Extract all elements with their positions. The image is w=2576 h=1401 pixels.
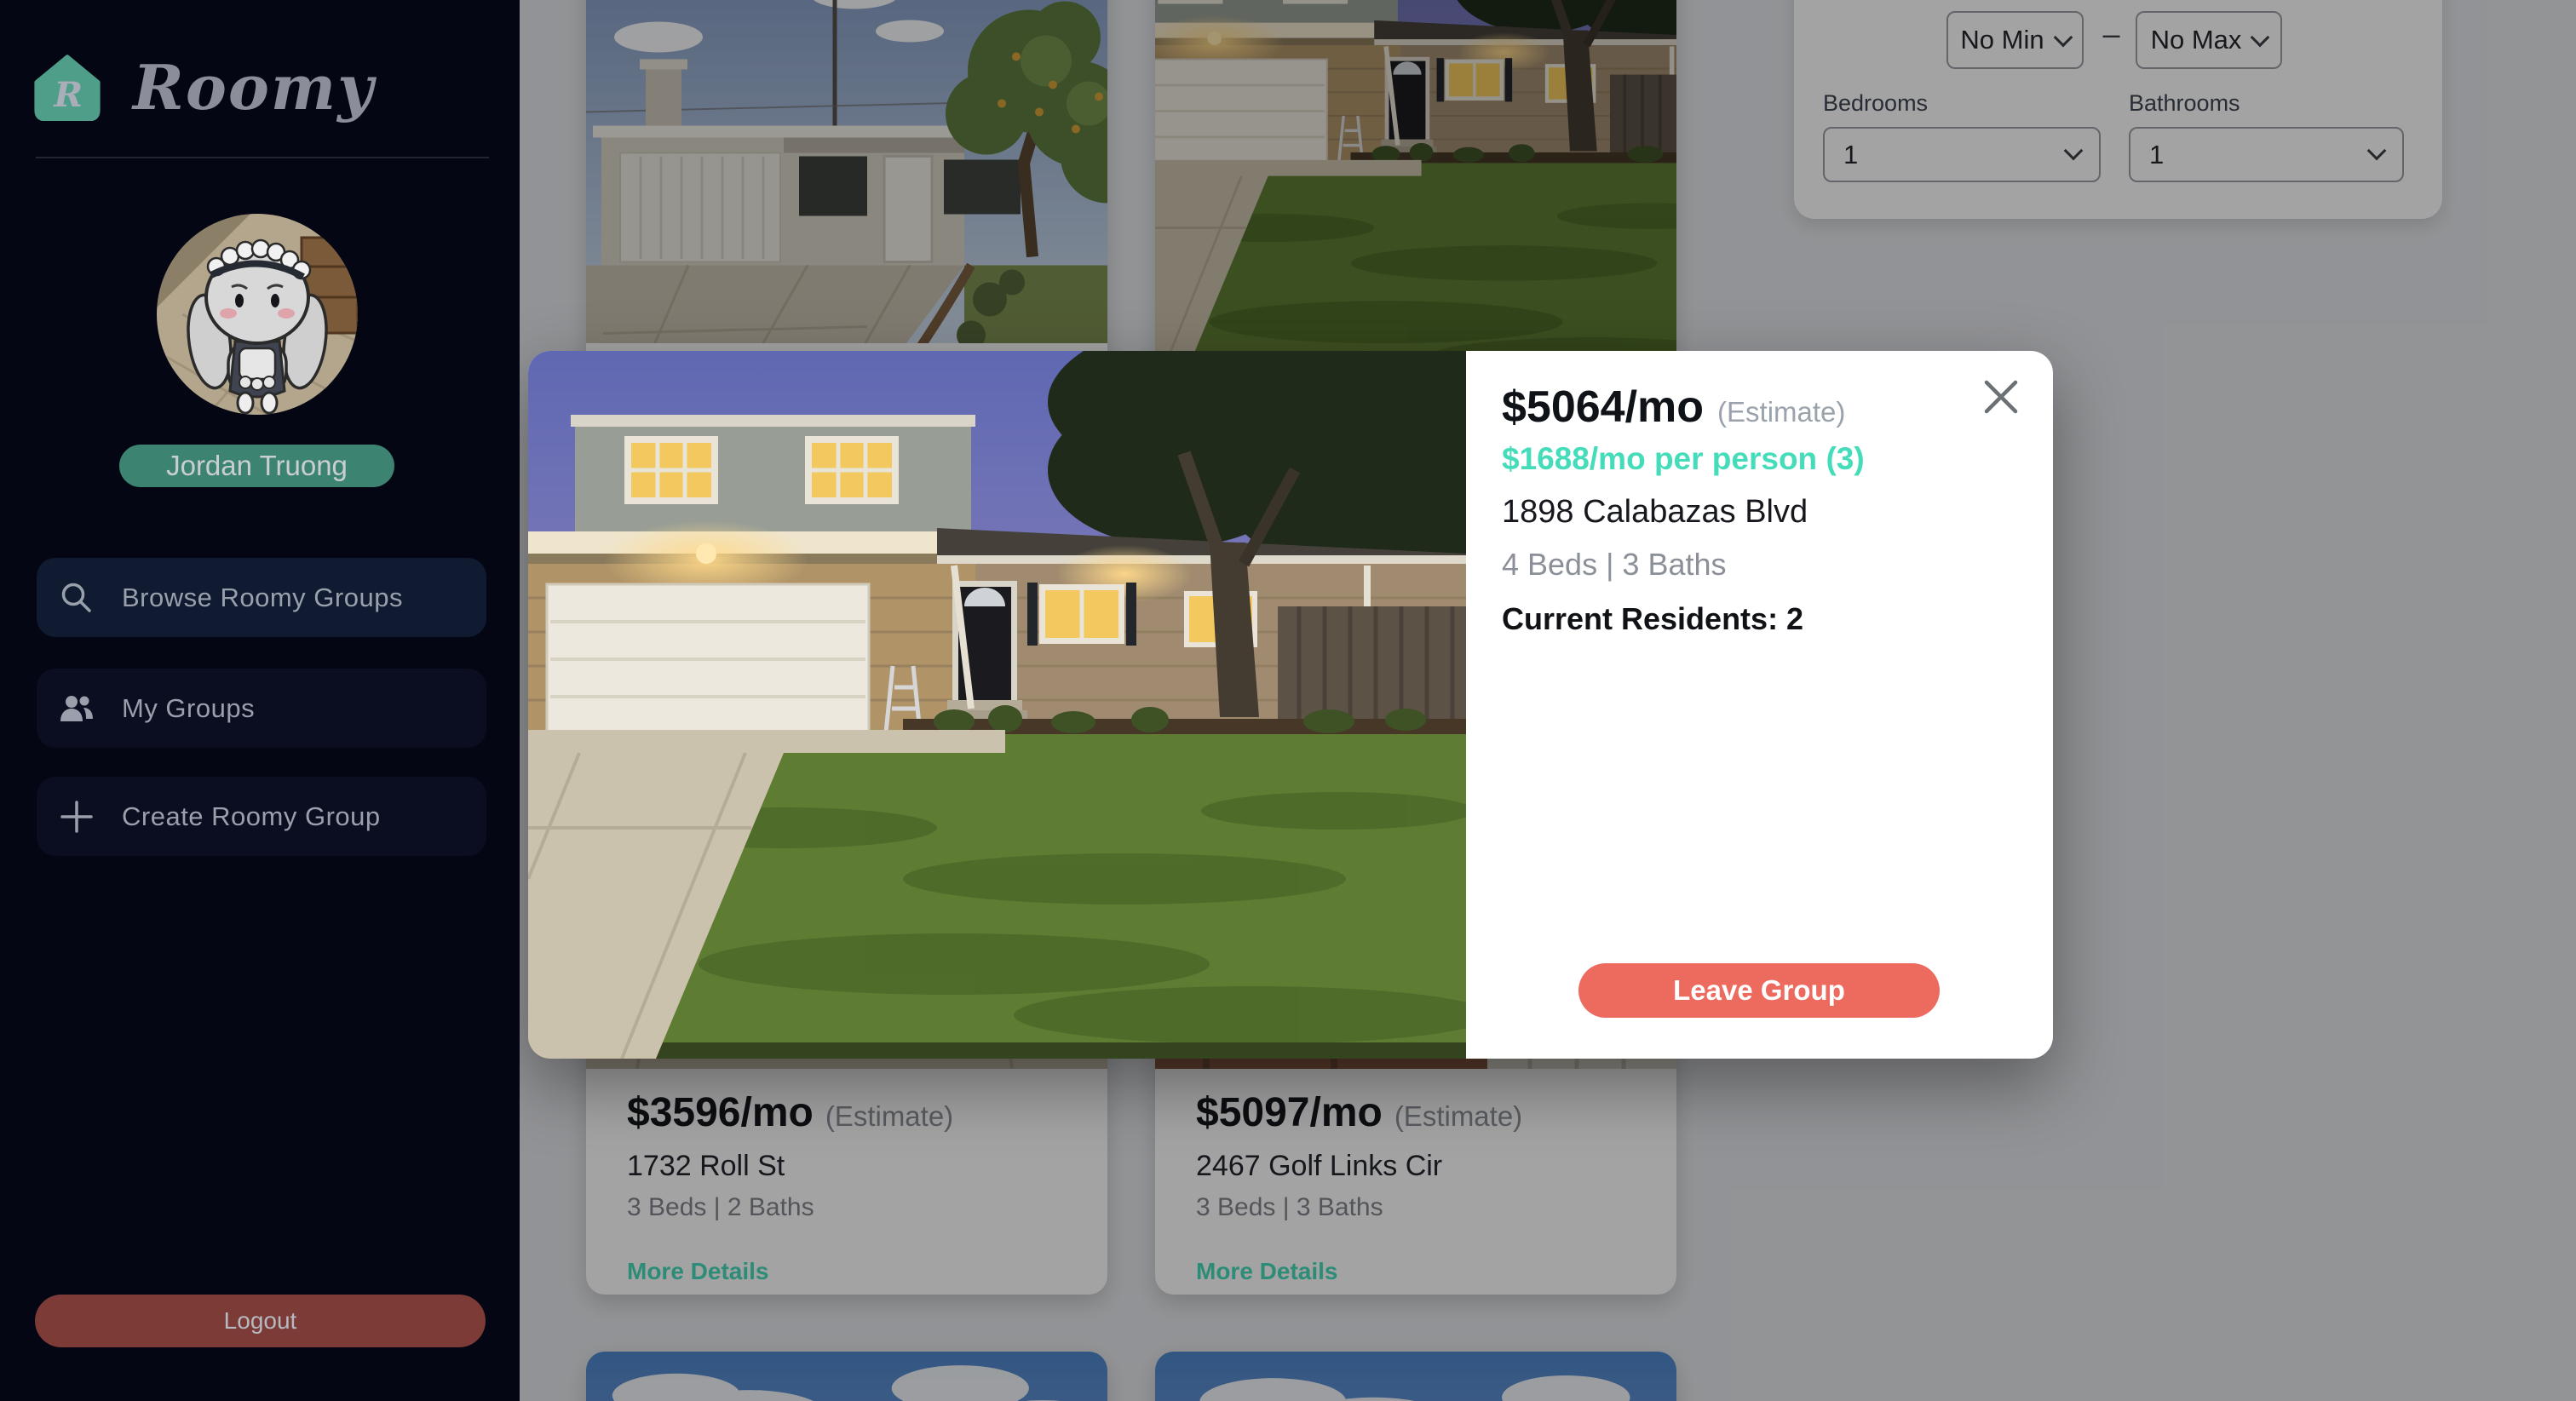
sidebar-item-label: My Groups xyxy=(122,693,255,724)
roomy-house-logo-icon: R xyxy=(34,55,101,121)
brand-name: Roomy xyxy=(133,51,375,123)
close-icon[interactable] xyxy=(1976,372,2026,422)
user-name-badge: Jordan Truong xyxy=(119,445,394,487)
modal-per-person-price: $1688/mo per person (3) xyxy=(1502,441,1865,477)
modal-listing-photo xyxy=(528,351,1466,1059)
sidebar-item-browse-roomy-groups[interactable]: Browse Roomy Groups xyxy=(37,558,486,637)
plus-icon xyxy=(57,797,96,836)
search-icon xyxy=(57,578,96,617)
sidebar-item-label: Browse Roomy Groups xyxy=(122,583,403,613)
people-icon xyxy=(57,689,96,728)
modal-current-residents: Current Residents: 2 xyxy=(1502,601,1803,637)
app-window: $3596/mo (Estimate) 1732 Roll St 3 Beds … xyxy=(0,0,2576,1401)
modal-beds-baths: 4 Beds | 3 Baths xyxy=(1502,547,1727,583)
modal-price: $5064/mo xyxy=(1502,382,1704,433)
listing-detail-modal: $5064/mo (Estimate) $1688/mo per person … xyxy=(528,351,2053,1059)
sidebar-item-my-groups[interactable]: My Groups xyxy=(37,669,486,748)
logout-button[interactable]: Logout xyxy=(35,1295,486,1347)
divider xyxy=(36,157,489,158)
leave-group-button[interactable]: Leave Group xyxy=(1578,963,1940,1018)
svg-text:R: R xyxy=(53,73,83,114)
modal-estimate-label: (Estimate) xyxy=(1717,396,1845,428)
modal-address: 1898 Calabazas Blvd xyxy=(1502,494,1808,531)
avatar xyxy=(157,214,358,415)
sidebar: R Roomy xyxy=(0,0,520,1401)
sidebar-item-create-roomy-group[interactable]: Create Roomy Group xyxy=(37,777,486,856)
main-content: $3596/mo (Estimate) 1732 Roll St 3 Beds … xyxy=(520,0,2576,1401)
sidebar-item-label: Create Roomy Group xyxy=(122,801,381,832)
